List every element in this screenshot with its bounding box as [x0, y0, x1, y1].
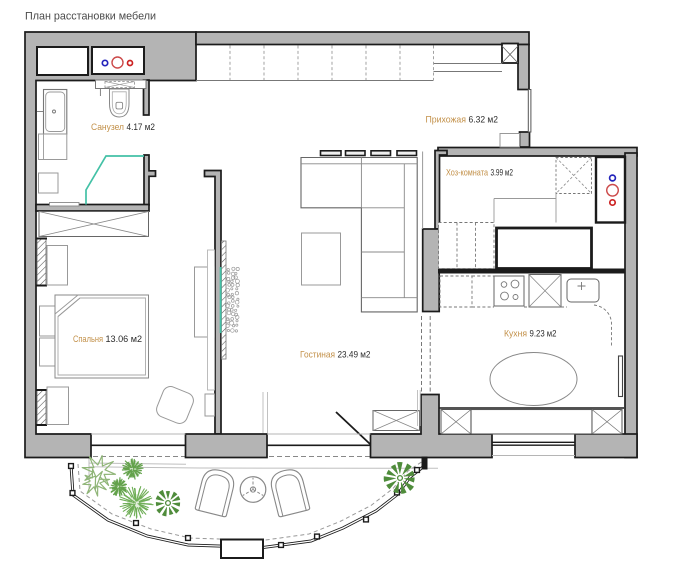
- svg-text:План расстановки мебели: План расстановки мебели: [25, 11, 156, 23]
- svg-text:Хоз-комната: Хоз-комната: [446, 168, 489, 178]
- svg-text:6.32 м2: 6.32 м2: [469, 115, 499, 125]
- svg-text:23.49 м2: 23.49 м2: [338, 350, 371, 360]
- svg-text:Санузел: Санузел: [91, 122, 124, 132]
- svg-text:Кухня: Кухня: [504, 329, 527, 339]
- svg-text:4.17 м2: 4.17 м2: [127, 122, 156, 132]
- svg-text:Спальня: Спальня: [73, 334, 103, 344]
- svg-text:13.06 м2: 13.06 м2: [106, 334, 143, 344]
- svg-text:Прихожая: Прихожая: [426, 115, 467, 125]
- svg-text:9.23 м2: 9.23 м2: [530, 329, 557, 339]
- svg-text:Гостиная: Гостиная: [300, 350, 335, 360]
- svg-text:3.99 м2: 3.99 м2: [491, 168, 514, 178]
